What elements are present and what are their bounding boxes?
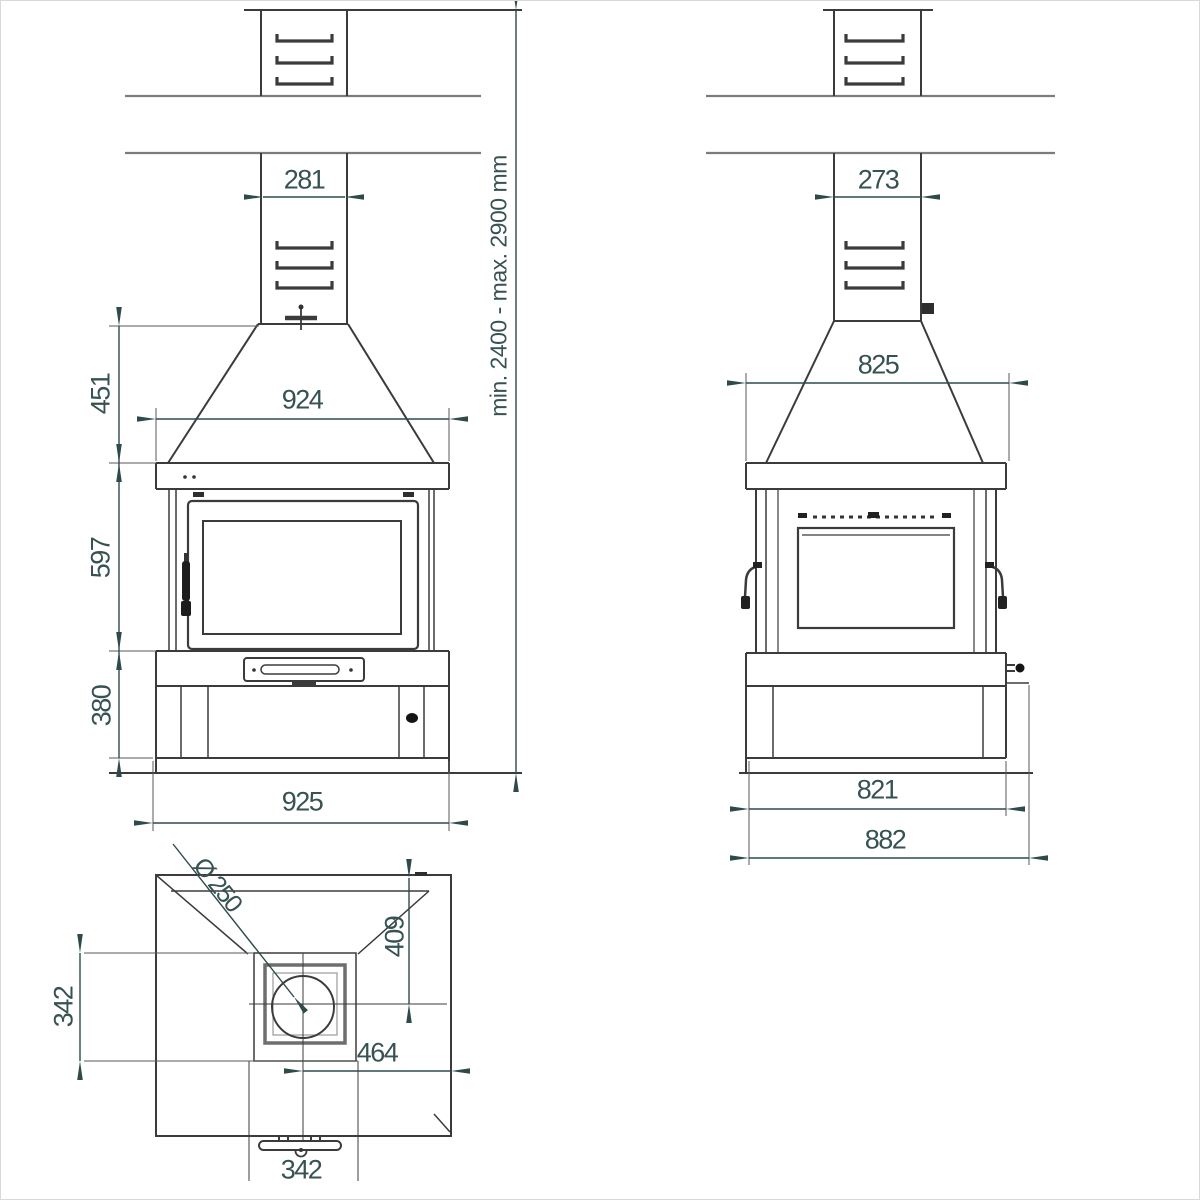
dim-label-top-flue-to-side: 464 <box>357 1040 398 1067</box>
extension-lines <box>84 326 1029 1061</box>
ash-drawer <box>244 658 364 681</box>
dim-label-front-hood-width: 924 <box>282 387 323 414</box>
dim-label-side-overall-depth: 882 <box>865 827 906 854</box>
side-window <box>798 528 954 628</box>
side-view <box>739 10 1033 773</box>
side-knob <box>1006 664 1025 673</box>
dim-label-front-firebox-height: 597 <box>88 538 115 579</box>
base-knob <box>406 713 418 723</box>
dim-label-front-overall-width: 925 <box>282 789 323 816</box>
door-glass <box>203 521 401 634</box>
dim-label-ceiling-height-range: min. 2400 - max. 2900 mm <box>488 155 511 417</box>
front-louvers-lower <box>277 241 332 288</box>
dim-label-side-body-depth: 821 <box>857 777 898 804</box>
door-handle <box>181 553 191 616</box>
dim-label-top-flue-box-width: 342 <box>281 1157 322 1184</box>
side-firebox <box>741 489 1007 653</box>
front-louvers-upper <box>277 34 332 84</box>
firebox-door <box>188 501 418 649</box>
dim-label-top-flue-offset: 409 <box>382 917 409 958</box>
flue-box <box>254 953 356 1061</box>
dim-label-front-hood-height: 451 <box>88 374 115 415</box>
front-firebox <box>169 489 434 651</box>
technical-drawing <box>1 1 1199 1199</box>
dim-label-side-chimney-depth: 273 <box>858 167 899 194</box>
dim-label-front-base-height: 380 <box>89 686 116 727</box>
side-lever-left <box>741 562 762 609</box>
damper-lever-side <box>922 303 934 314</box>
side-louvers-lower <box>846 241 903 288</box>
dim-label-top-flue-box-depth: 342 <box>51 987 78 1028</box>
front-base <box>109 651 522 773</box>
rear-damper-plate <box>259 1136 341 1157</box>
ceiling-lines <box>125 96 1055 153</box>
dim-label-side-hood-depth: 825 <box>858 352 899 379</box>
side-hood <box>746 321 1006 489</box>
dim-label-front-chimney-width: 281 <box>284 167 325 194</box>
fireplace-dimension-diagram: 281 924 451 597 380 925 min. 2400 - max.… <box>0 0 1200 1200</box>
side-louvers-upper <box>846 34 903 84</box>
damper-control-icon <box>285 305 317 331</box>
side-base <box>739 653 1033 773</box>
drawer-slot <box>261 665 339 674</box>
